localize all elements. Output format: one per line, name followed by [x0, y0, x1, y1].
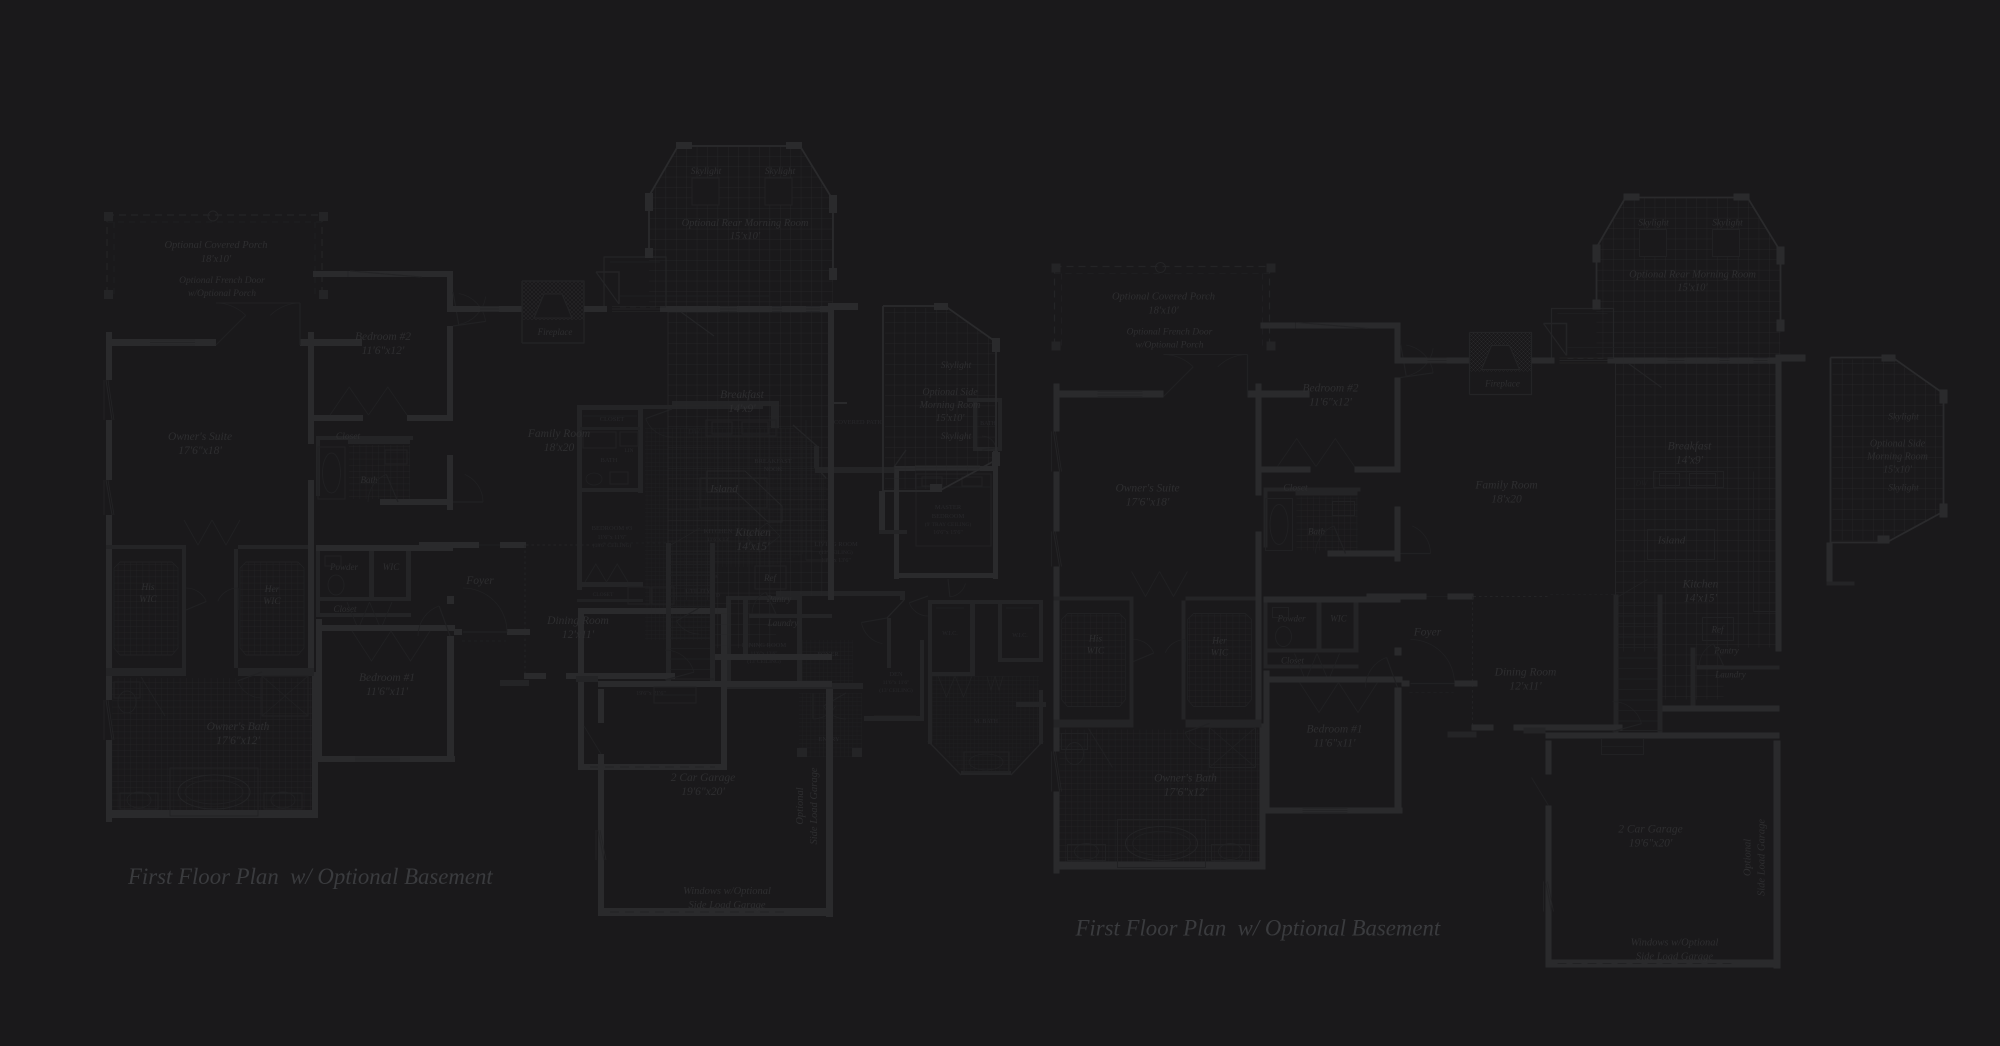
svg-text:11'6"x12': 11'6"x12' [362, 345, 405, 357]
svg-text:BEDROOM: BEDROOM [932, 513, 965, 520]
svg-text:Owner's Bath: Owner's Bath [207, 721, 270, 733]
svg-text:Breakfast: Breakfast [720, 389, 764, 401]
svg-text:COVERED PATIO: COVERED PATIO [834, 419, 884, 426]
svg-text:W.I.C.: W.I.C. [942, 631, 958, 637]
svg-text:Side Load Garage: Side Load Garage [689, 900, 766, 911]
svg-text:DW: DW [687, 427, 700, 436]
svg-text:Owner's Suite: Owner's Suite [168, 431, 232, 443]
svg-text:Optional Covered Porch: Optional Covered Porch [164, 240, 267, 251]
svg-text:Ref: Ref [763, 573, 777, 583]
svg-text:M. BATH: M. BATH [974, 719, 999, 725]
svg-text:Dining Room: Dining Room [546, 615, 609, 627]
svg-text:17'6"x12': 17'6"x12' [216, 735, 260, 747]
svg-text:WIC: WIC [263, 597, 281, 607]
svg-text:14'x9': 14'x9' [728, 403, 756, 415]
svg-text:Closet: Closet [333, 604, 357, 614]
svg-text:(13' CEILING): (13' CEILING) [879, 687, 913, 694]
svg-text:19'6"x 21'6": 19'6"x 21'6" [636, 691, 666, 697]
svg-text:W.I.C.: W.I.C. [1012, 633, 1028, 639]
svg-text:2 Car Garage: 2 Car Garage [671, 772, 736, 784]
svg-text:WIC: WIC [383, 562, 400, 572]
svg-text:Optional French Door: Optional French Door [179, 276, 265, 286]
svg-text:12'x11': 12'x11' [562, 629, 595, 641]
svg-text:18'x20: 18'x20 [544, 442, 575, 454]
svg-text:Family Room: Family Room [527, 428, 590, 440]
svg-text:Skylight: Skylight [691, 167, 722, 177]
svg-text:14'x15': 14'x15' [736, 541, 770, 553]
svg-text:11'6"x 11'6": 11'6"x 11'6" [597, 535, 627, 541]
svg-text:Island: Island [709, 483, 738, 495]
svg-text:Skylight: Skylight [941, 361, 972, 371]
svg-text:Side Load Garage: Side Load Garage [809, 767, 820, 844]
svg-text:Bath: Bath [361, 475, 378, 485]
svg-text:Her: Her [264, 585, 280, 595]
svg-text:BEDROOM #3: BEDROOM #3 [592, 525, 633, 532]
svg-text:MASTER: MASTER [935, 504, 962, 511]
svg-text:Skylight: Skylight [765, 167, 796, 177]
svg-text:15'x10': 15'x10' [730, 231, 761, 242]
svg-text:Bedroom #1: Bedroom #1 [359, 672, 415, 684]
svg-text:LIN: LIN [624, 448, 633, 454]
svg-text:Foyer: Foyer [465, 575, 494, 587]
svg-text:w/Optional Porch: w/Optional Porch [188, 289, 256, 299]
svg-text:CLOSET: CLOSET [593, 592, 614, 598]
svg-text:CLOSET: CLOSET [600, 416, 625, 423]
svg-text:Kitchen: Kitchen [734, 527, 771, 539]
svg-text:11'6"x 11'6": 11'6"x 11'6" [883, 680, 910, 686]
svg-text:DEN: DEN [889, 671, 903, 678]
svg-text:Skylight: Skylight [941, 432, 972, 442]
svg-text:Optional Side: Optional Side [922, 387, 978, 398]
svg-text:19'6"x20': 19'6"x20' [681, 786, 725, 798]
svg-text:Powder: Powder [329, 562, 358, 572]
svg-text:Optional Rear Morning Room: Optional Rear Morning Room [682, 218, 809, 229]
svg-text:16'6"x 15'6": 16'6"x 15'6" [933, 530, 963, 536]
svg-text:Bedroom #2: Bedroom #2 [355, 331, 411, 343]
svg-text:First Floor Plan w/ Optional: First Floor Plan w/ Optional Basement [127, 864, 493, 889]
svg-text:Fireplace: Fireplace [537, 327, 573, 337]
svg-text:Optional: Optional [795, 787, 806, 824]
svg-text:11'6"x11': 11'6"x11' [366, 686, 408, 698]
svg-text:15'x10': 15'x10' [936, 413, 966, 424]
svg-text:His: His [140, 583, 155, 593]
svg-text:(9' TRAY CEILING): (9' TRAY CEILING) [925, 521, 971, 528]
svg-text:Laundry: Laundry [767, 618, 799, 628]
svg-text:Windows w/Optional: Windows w/Optional [683, 886, 771, 897]
svg-text:17'6"x18': 17'6"x18' [178, 445, 222, 457]
svg-text:Morning Room: Morning Room [919, 400, 981, 411]
svg-text:BATH: BATH [601, 457, 618, 464]
svg-text:18'x10': 18'x10' [201, 254, 232, 265]
svg-text:WIC: WIC [139, 595, 157, 605]
